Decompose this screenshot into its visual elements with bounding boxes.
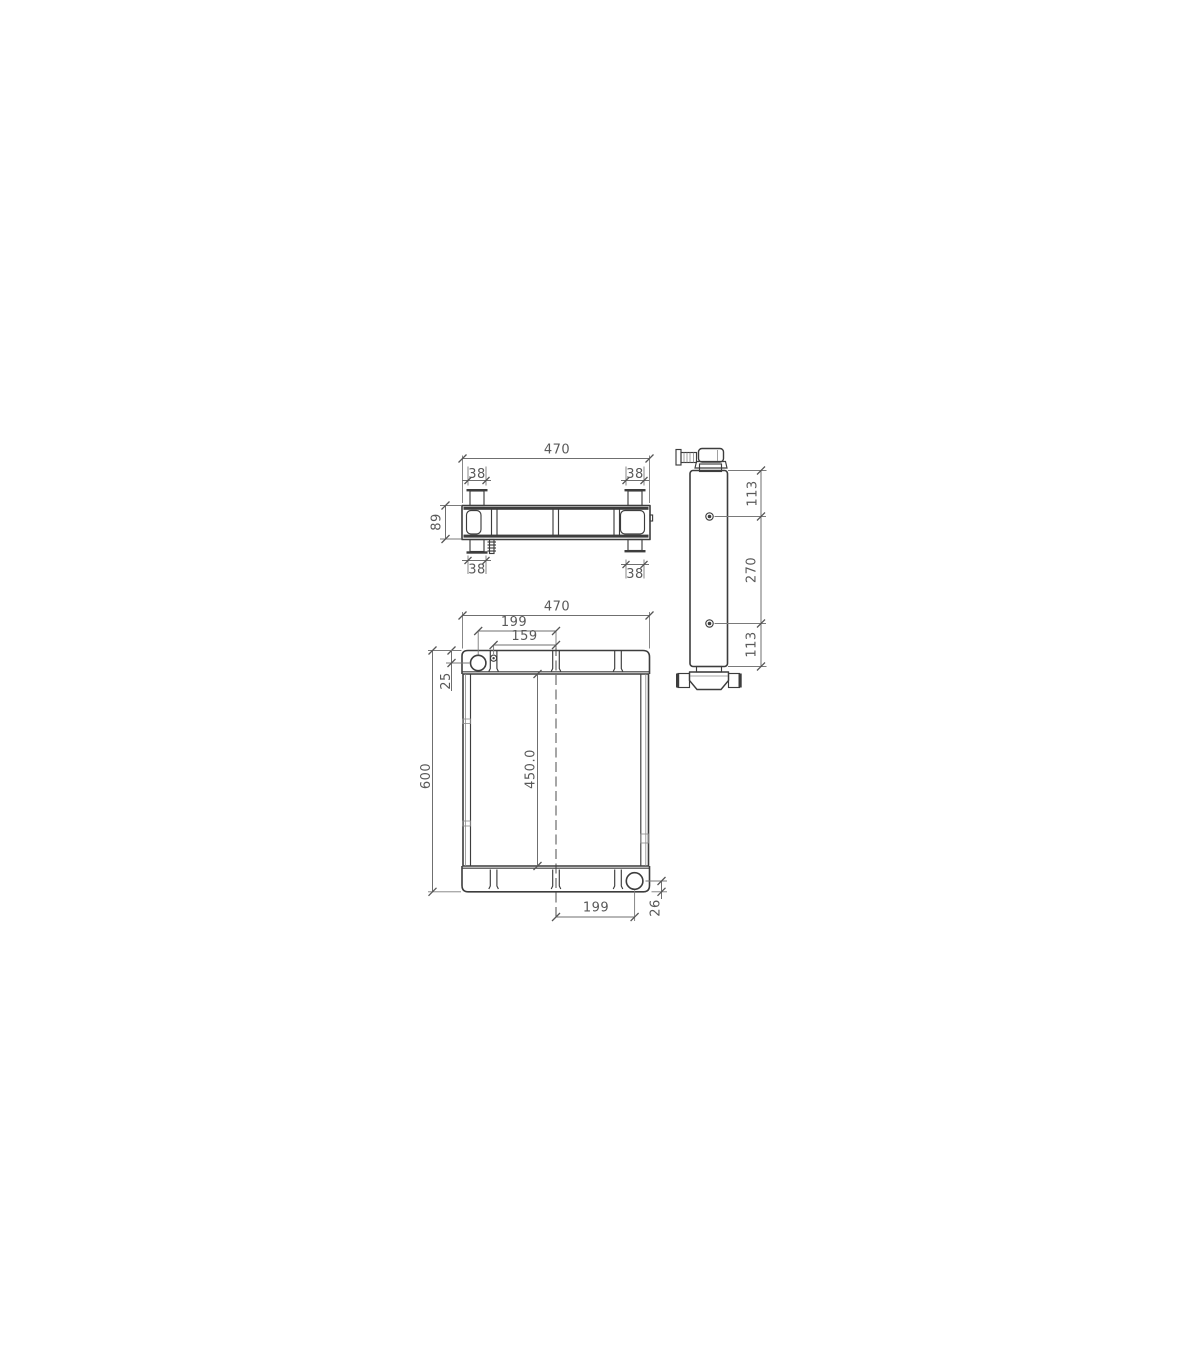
dim-outlet-offset: 199 bbox=[552, 891, 639, 922]
overflow-barb-fitting bbox=[676, 450, 697, 466]
dim-bracket-bottom-left: 38 bbox=[462, 556, 491, 578]
right-edge-tab bbox=[650, 515, 653, 521]
dim-label: 600 bbox=[419, 763, 434, 789]
bottom-outlet-fitting bbox=[676, 667, 742, 690]
dim-label: 25 bbox=[439, 672, 454, 690]
top-view-body bbox=[462, 506, 650, 540]
dim-label: 470 bbox=[544, 600, 570, 615]
dim-label: 38 bbox=[468, 467, 486, 482]
top-wall bbox=[464, 507, 649, 510]
dim-top-overall-width: 470 bbox=[459, 443, 654, 504]
mounting-hole-bottom bbox=[706, 620, 713, 627]
side-view-tank-body bbox=[690, 471, 728, 667]
drawing-canvas: 470 38 38 89 bbox=[0, 0, 1200, 1372]
dim-core-height: 450.0 bbox=[524, 670, 542, 870]
dim-label: 199 bbox=[583, 901, 609, 916]
dim-top-depth: 89 bbox=[430, 502, 461, 544]
dim-label: 113 bbox=[746, 480, 761, 506]
header-dividers bbox=[492, 510, 620, 536]
dim-label: 270 bbox=[745, 557, 760, 583]
dim-label: 113 bbox=[745, 631, 760, 657]
dim-bracket-top-right: 38 bbox=[621, 467, 649, 486]
mounting-brackets-top bbox=[467, 489, 646, 506]
dim-label: 38 bbox=[468, 563, 486, 578]
left-end-cap bbox=[467, 511, 482, 535]
radiator-technical-drawing: 470 38 38 89 bbox=[0, 0, 1200, 1372]
dim-label: 38 bbox=[626, 467, 644, 482]
side-view: 113 270 113 bbox=[676, 449, 767, 690]
dim-label: 159 bbox=[511, 629, 537, 644]
dim-bracket-top-left: 38 bbox=[462, 467, 491, 486]
drain-barb bbox=[488, 540, 497, 554]
front-view: 470 199 159 25 bbox=[419, 600, 667, 922]
dim-bracket-bottom-right: 38 bbox=[621, 560, 649, 583]
dim-side-hole-positions: 113 270 113 bbox=[728, 467, 767, 671]
filler-neck-and-cap bbox=[695, 449, 727, 472]
dim-label: 199 bbox=[501, 615, 527, 630]
dim-label: 450.0 bbox=[524, 749, 539, 789]
dim-label: 89 bbox=[430, 513, 445, 531]
bleed-bolt bbox=[491, 655, 497, 661]
mounting-hole-top bbox=[706, 513, 713, 520]
dim-label: 470 bbox=[544, 443, 570, 458]
right-end-cap bbox=[621, 511, 645, 535]
top-view: 470 38 38 89 bbox=[430, 443, 654, 583]
dim-filler-drop: 25 bbox=[439, 647, 469, 692]
outlet-port-circle bbox=[626, 873, 643, 890]
filler-neck-circle bbox=[471, 655, 486, 670]
dim-label: 26 bbox=[649, 899, 664, 917]
dim-label: 38 bbox=[626, 567, 644, 582]
